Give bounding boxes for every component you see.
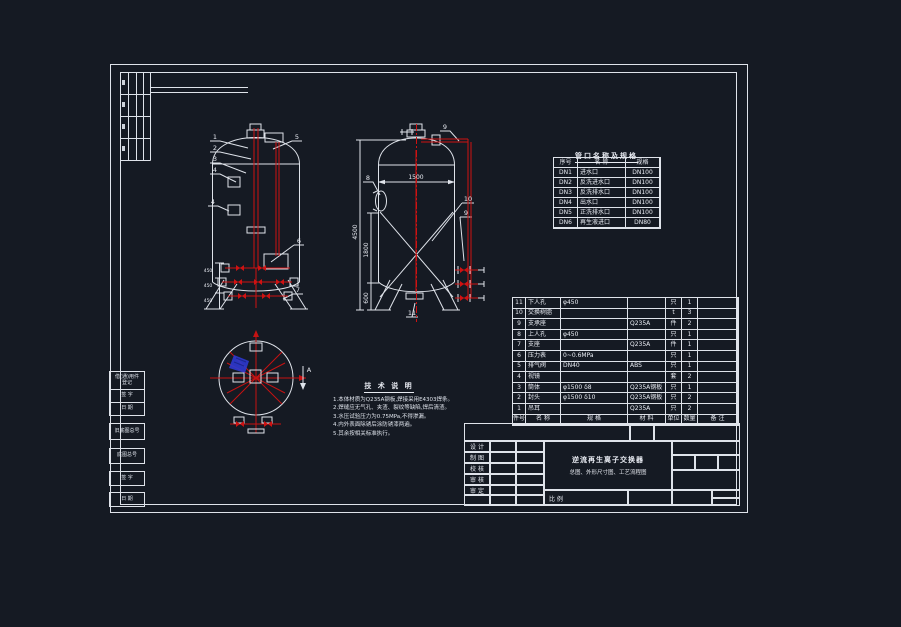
dim-label: 450 (204, 283, 213, 289)
bom-cell (628, 372, 666, 383)
bom-cell: 0~0.6MPa (561, 351, 628, 362)
bom-cell: 6 (513, 351, 526, 362)
balloon-label: 11 (408, 309, 416, 317)
title-block: 设 计 制 图 校 核 审 核 审 定 逆流再生离子交换器 总图、外形尺寸图、工… (464, 423, 740, 506)
bom-cell: 只 (666, 404, 682, 415)
left-vessel-valves (234, 265, 284, 299)
bom-cell: φ450 (561, 330, 628, 341)
role-label: 审 核 (464, 474, 490, 485)
margin-strip-cell: 旧底图总号 (109, 423, 145, 440)
title-block-cell (695, 455, 718, 470)
title-block-cell (464, 495, 490, 506)
nozzle-cell: DN100 (626, 188, 660, 198)
bom-cell (561, 309, 628, 320)
title-block-cell (672, 490, 712, 506)
bom-cell: DN40 (561, 362, 628, 373)
bom-cell (628, 351, 666, 362)
bom-cell: 只 (666, 393, 682, 404)
bom-cell: 9 (513, 319, 526, 330)
bom-cell: 上人孔 (526, 330, 561, 341)
signature-cell (490, 474, 516, 485)
margin-strip-label: 登记 (122, 381, 132, 387)
bom-table: 11下人孔φ450只1 10交换树脂t3 9支承座Q235A件2 8上人孔φ45… (512, 297, 739, 426)
section-label: A (307, 366, 312, 374)
bom-cell: 1 (682, 383, 698, 394)
bom-cell (698, 404, 738, 415)
balloon-label: 2 (213, 144, 217, 152)
bom-cell: Q235A (628, 319, 666, 330)
drawing-subtitle: 总图、外形尺寸图、工艺流程图 (569, 468, 646, 476)
bom-cell (561, 404, 628, 415)
bom-cell: φ450 (561, 298, 628, 309)
bom-cell: 1 (513, 404, 526, 415)
nozzle-cell: 反洗进水口 (578, 178, 626, 188)
bom-cell: 支承座 (526, 319, 561, 330)
note-line: 3.水压试验压力为0.75MPa,不得渗漏。 (333, 413, 445, 421)
bom-cell: 只 (666, 383, 682, 394)
technical-notes: 技 术 说 明 1.本体材质为Q235A钢板,焊接采用E4303焊条。 2.焊缝… (333, 381, 445, 438)
title-block-cell (464, 423, 630, 441)
nozzle-cell: 出水口 (578, 198, 626, 208)
bom-cell: 只 (666, 362, 682, 373)
margin-strip-cell: 签 字 (109, 389, 145, 403)
balloon-label: 3 (213, 155, 217, 163)
bom-cell: 件 (666, 340, 682, 351)
balloon-label: 6 (297, 237, 301, 245)
bom-cell: 2 (682, 372, 698, 383)
nozzle-header: 序号 (554, 158, 578, 168)
bom-cell: 下人孔 (526, 298, 561, 309)
signature-cell (490, 463, 516, 474)
title-block-cell (672, 455, 695, 470)
bom-cell: 只 (666, 330, 682, 341)
bom-cell: 2 (682, 319, 698, 330)
bom-cell: Q235A (628, 340, 666, 351)
bom-cell: 3 (513, 383, 526, 394)
margin-strip-cell: 日 期 (109, 492, 145, 507)
dim-label: 1800 (363, 242, 370, 257)
bom-cell (698, 362, 738, 373)
bom-cell (628, 330, 666, 341)
balloon-label: 4 (213, 166, 217, 174)
bom-cell: 11 (513, 298, 526, 309)
cad-workspace: 1 2 3 4 4 5 6 7 8 9 10 9 11 1500 4500 18… (0, 0, 901, 627)
bom-cell: φ1500 δ8 (561, 383, 628, 394)
title-block-cell (654, 423, 740, 441)
margin-strip-label: 旧底图总号 (114, 429, 139, 435)
bom-cell (628, 298, 666, 309)
bom-cell: 件 (666, 319, 682, 330)
bom-cell: 2 (682, 404, 698, 415)
bom-cell (698, 330, 738, 341)
bom-cell: 交换树脂 (526, 309, 561, 320)
dim-label: 4500 (352, 224, 359, 239)
nozzle-cell: 正洗排水口 (578, 208, 626, 218)
date-cell (516, 441, 544, 452)
balloon-label: 1 (213, 133, 217, 141)
bom-cell: Q235A钢板 (628, 393, 666, 404)
bom-cell (698, 309, 738, 320)
bom-cell (698, 393, 738, 404)
balloon-label: 5 (295, 133, 299, 141)
bom-cell: t (666, 309, 682, 320)
bom-cell: 1 (682, 298, 698, 309)
nozzle-cell: DN5 (554, 208, 578, 218)
nozzle-cell: DN2 (554, 178, 578, 188)
bom-cell: φ1500 δ10 (561, 393, 628, 404)
bom-cell: 2 (682, 393, 698, 404)
margin-strip-cell: 签 字 (109, 471, 145, 486)
nozzle-cell: DN1 (554, 168, 578, 178)
bom-cell: 压力表 (526, 351, 561, 362)
scale-cell: 比 例 (544, 490, 628, 506)
bom-cell: 10 (513, 309, 526, 320)
note-line: 2.焊缝应无气孔、夹渣、裂纹等缺陷,焊后清渣。 (333, 404, 445, 412)
bom-cell: 5 (513, 362, 526, 373)
bom-cell (698, 340, 738, 351)
bom-cell: 筒体 (526, 383, 561, 394)
role-label: 制 图 (464, 452, 490, 463)
nozzle-cell: DN3 (554, 188, 578, 198)
bom-cell (698, 372, 738, 383)
nozzle-table: 序号名 称规格 DN1进水口DN100 DN2反洗进水口DN100 DN3反洗排… (553, 157, 661, 229)
nozzle-cell: DN100 (626, 208, 660, 218)
balloon-label: 7 (296, 286, 300, 294)
bom-cell (628, 309, 666, 320)
revision-grid-marks (122, 80, 125, 151)
bom-cell: 只 (666, 351, 682, 362)
bom-cell: 套 (666, 372, 682, 383)
title-block-cell (516, 495, 544, 506)
title-block-cell (718, 455, 740, 470)
bom-cell: 只 (666, 298, 682, 309)
drawing-title-cell: 逆流再生离子交换器 总图、外形尺寸图、工艺流程图 (544, 441, 672, 490)
bom-cell: 1 (682, 330, 698, 341)
role-label: 校 核 (464, 463, 490, 474)
balloon-label: 10 (464, 195, 472, 203)
bom-cell: Q235A钢板 (628, 383, 666, 394)
nozzle-cell: DN100 (626, 168, 660, 178)
signature-cell (490, 441, 516, 452)
bom-cell: 7 (513, 340, 526, 351)
signature-cell (490, 452, 516, 463)
bom-cell (698, 298, 738, 309)
bom-cell (561, 319, 628, 330)
bom-cell: ABS (628, 362, 666, 373)
role-label: 设 计 (464, 441, 490, 452)
signature-cell (490, 485, 516, 495)
right-elevation-view (356, 124, 484, 317)
dim-label: 450 (204, 298, 213, 304)
technical-notes-title: 技 术 说 明 (364, 381, 413, 393)
nozzle-cell: DN100 (626, 198, 660, 208)
annotation-text: 1 2 3 4 4 5 6 7 8 9 10 9 11 1500 4500 18… (204, 123, 472, 374)
bom-cell: 1 (682, 362, 698, 373)
bom-cell: Q235A (628, 404, 666, 415)
nozzle-cell: 反洗排水口 (578, 188, 626, 198)
bom-cell: 3 (682, 309, 698, 320)
note-line: 4.内外表面除锈后涂防锈漆两遍。 (333, 421, 445, 429)
role-label: 审 定 (464, 485, 490, 495)
balloon-label: 8 (366, 174, 370, 182)
dim-label: 600 (363, 292, 370, 304)
title-block-cell (672, 441, 740, 455)
balloon-label: 9 (464, 209, 468, 217)
dim-label: 1500 (408, 174, 423, 181)
margin-strip-label: 签 字 (121, 476, 133, 482)
margin-strip-label: 底图总号 (117, 453, 137, 459)
nozzle-cell: DN4 (554, 198, 578, 208)
date-cell (516, 474, 544, 485)
nozzle-cell: DN80 (626, 218, 660, 228)
note-line: 5.其余按相关标准执行。 (333, 430, 445, 438)
bom-cell: 1 (682, 351, 698, 362)
title-block-cell (712, 490, 740, 498)
bom-cell: 封头 (526, 393, 561, 404)
drawing-number-cell (672, 470, 740, 490)
dim-label: 450 (204, 268, 213, 274)
bom-cell (561, 340, 628, 351)
margin-strip-label: 日 期 (121, 497, 133, 503)
bom-cell (698, 351, 738, 362)
title-block-cell (628, 490, 672, 506)
nozzle-cell: 再生液进口 (578, 218, 626, 228)
bom-cell: 1 (682, 340, 698, 351)
nozzle-header: 规格 (626, 158, 660, 168)
right-vessel-piping (416, 124, 478, 322)
plan-view (210, 330, 306, 433)
balloon-label: 4 (211, 198, 215, 206)
title-block-cell (712, 498, 740, 506)
note-line: 1.本体材质为Q235A钢板,焊接采用E4303焊条。 (333, 396, 445, 404)
date-cell (516, 485, 544, 495)
nozzle-cell: 进水口 (578, 168, 626, 178)
bom-cell (698, 383, 738, 394)
bom-cell (698, 319, 738, 330)
bom-cell: 支座 (526, 340, 561, 351)
margin-strip-label: 日 期 (121, 406, 133, 412)
margin-strip-cell: 底图总号 (109, 448, 145, 464)
nozzle-header: 名 称 (578, 158, 626, 168)
title-block-cell (490, 495, 516, 506)
bom-cell (561, 372, 628, 383)
title-block-cell (630, 423, 654, 441)
nozzle-cell: DN100 (626, 178, 660, 188)
balloon-label: 9 (443, 123, 447, 131)
bom-cell: 吊耳 (526, 404, 561, 415)
bom-cell: 排气阀 (526, 362, 561, 373)
margin-strip-cell: 借(通)用件 登记 (109, 371, 145, 390)
bom-cell: 2 (513, 393, 526, 404)
margin-strip-cell: 日 期 (109, 402, 145, 416)
date-cell (516, 452, 544, 463)
drawing-title: 逆流再生离子交换器 (572, 455, 644, 465)
bom-cell: 视镜 (526, 372, 561, 383)
cad-drawing-svg: 1 2 3 4 4 5 6 7 8 9 10 9 11 1500 4500 18… (0, 0, 901, 627)
bom-cell: 4 (513, 372, 526, 383)
margin-strip-label: 签 字 (121, 393, 133, 399)
right-vessel-valves (460, 267, 468, 301)
date-cell (516, 463, 544, 474)
bom-cell: 8 (513, 330, 526, 341)
nozzle-cell: DN6 (554, 218, 578, 228)
